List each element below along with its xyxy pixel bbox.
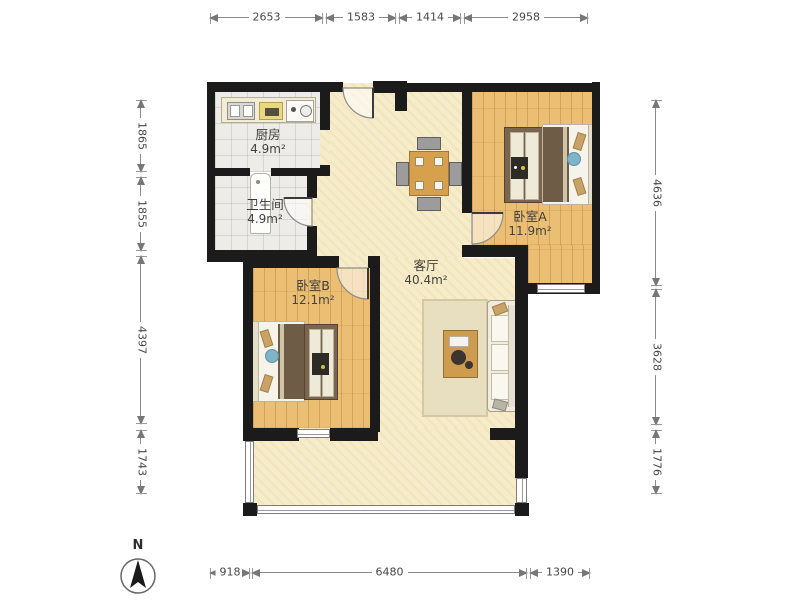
wall bbox=[320, 82, 330, 130]
compass: N bbox=[112, 538, 164, 598]
window bbox=[297, 429, 330, 438]
sofa-cushion bbox=[491, 373, 509, 400]
wall bbox=[243, 256, 253, 441]
dim-value: 918 bbox=[216, 567, 245, 580]
room-label-bathroom: 卫生间 4.9m² bbox=[246, 197, 284, 227]
dim-bottom-1: 6480 bbox=[252, 572, 527, 573]
room-label-living-room: 客厅 40.4m² bbox=[404, 258, 447, 288]
wall bbox=[207, 168, 250, 176]
dim-left-0: 1865 bbox=[140, 100, 141, 172]
dim-value: 4397 bbox=[135, 322, 148, 358]
dim-bottom-0: 918 bbox=[210, 572, 250, 573]
kitchen-sink bbox=[227, 102, 255, 120]
throw-pillow bbox=[492, 302, 509, 316]
throw-pillow bbox=[492, 398, 508, 411]
dim-left-1: 1855 bbox=[140, 177, 141, 251]
sink-basin bbox=[230, 105, 240, 117]
bed-headboard bbox=[253, 322, 259, 401]
tv-led bbox=[514, 166, 517, 169]
tv bbox=[312, 353, 329, 375]
dim-top-3: 2958 bbox=[464, 17, 588, 18]
kitchen-stove bbox=[259, 102, 283, 120]
round-cushion bbox=[567, 152, 581, 166]
dim-right-2: 1776 bbox=[655, 430, 656, 494]
floor-plan-page: { "compass": { "label": "N" }, "rooms": … bbox=[0, 0, 800, 600]
pillow bbox=[573, 132, 587, 151]
plate bbox=[415, 181, 424, 190]
dining-chair bbox=[396, 162, 409, 186]
room-label-kitchen: 厨房 4.9m² bbox=[250, 127, 286, 157]
dim-bottom-2: 1390 bbox=[530, 572, 590, 573]
dim-top-2: 1414 bbox=[399, 17, 461, 18]
wall bbox=[515, 245, 528, 478]
room-name: 卧室A bbox=[508, 209, 551, 224]
plate bbox=[415, 157, 424, 166]
cooktop-ring bbox=[300, 105, 312, 117]
dim-value: 6480 bbox=[372, 567, 408, 580]
bedroom-a-floor-ext bbox=[528, 245, 592, 284]
blanket-stripe bbox=[563, 127, 567, 202]
wardrobe bbox=[304, 324, 338, 400]
dim-right-0: 4636 bbox=[655, 100, 656, 286]
dining-chair bbox=[417, 137, 441, 150]
wall bbox=[462, 92, 472, 213]
dining-table bbox=[409, 151, 449, 196]
room-name: 卧室B bbox=[291, 278, 334, 293]
room-area: 11.9m² bbox=[508, 224, 551, 239]
room-label-bedroom-b: 卧室B 12.1m² bbox=[291, 278, 334, 308]
kitchen-threshold bbox=[320, 130, 330, 165]
dim-value: 1855 bbox=[135, 196, 148, 232]
wall bbox=[243, 428, 299, 441]
plate bbox=[434, 157, 443, 166]
dim-value: 2653 bbox=[249, 12, 285, 25]
wall bbox=[243, 256, 339, 268]
wall-corner-post bbox=[243, 503, 257, 516]
tray bbox=[449, 336, 469, 347]
room-name: 厨房 bbox=[250, 127, 286, 142]
room-name: 客厅 bbox=[404, 258, 447, 273]
tv-led bbox=[321, 365, 325, 369]
tv bbox=[511, 157, 528, 179]
compass-north-label: N bbox=[112, 538, 164, 553]
wall bbox=[330, 428, 378, 441]
wall bbox=[271, 168, 330, 176]
bed bbox=[252, 321, 305, 402]
wall bbox=[395, 93, 407, 111]
coffee-table bbox=[443, 330, 478, 378]
window bbox=[245, 441, 254, 503]
wall bbox=[592, 82, 600, 294]
room-area: 4.9m² bbox=[250, 142, 286, 157]
dim-top-1: 1583 bbox=[326, 17, 396, 18]
dim-value: 1865 bbox=[135, 118, 148, 154]
dim-left-2: 4397 bbox=[140, 256, 141, 424]
sofa-cushion bbox=[491, 315, 509, 342]
window bbox=[537, 284, 585, 293]
plate bbox=[434, 181, 443, 190]
room-area: 12.1m² bbox=[291, 293, 334, 308]
stove-burner bbox=[265, 108, 279, 116]
dining-chair bbox=[417, 197, 441, 211]
tv-led bbox=[521, 166, 525, 170]
dim-value: 1390 bbox=[542, 567, 578, 580]
sink-basin bbox=[243, 105, 253, 117]
dim-left-3: 1743 bbox=[140, 430, 141, 494]
room-area: 4.9m² bbox=[246, 212, 284, 227]
wardrobe bbox=[504, 127, 543, 203]
window bbox=[257, 505, 515, 514]
entrance-threshold bbox=[340, 83, 375, 93]
cooktop-knob bbox=[291, 107, 296, 112]
room-label-bedroom-a: 卧室A 11.9m² bbox=[508, 209, 551, 239]
wall-corner-post bbox=[515, 503, 529, 516]
pillow bbox=[573, 177, 587, 196]
dim-value: 1583 bbox=[343, 12, 379, 25]
dining-chair bbox=[449, 162, 462, 186]
cup bbox=[465, 361, 473, 369]
dim-value: 1776 bbox=[650, 444, 663, 480]
bedroom-b-threshold bbox=[339, 256, 368, 268]
wall bbox=[462, 83, 600, 92]
dim-value: 3628 bbox=[650, 339, 663, 375]
room-area: 40.4m² bbox=[404, 273, 447, 288]
compass-icon bbox=[112, 554, 164, 598]
bed bbox=[542, 124, 595, 205]
wall bbox=[307, 226, 317, 252]
dim-value: 4636 bbox=[650, 175, 663, 211]
wall bbox=[490, 428, 515, 440]
kitchen-counter bbox=[221, 97, 316, 123]
bathroom-threshold bbox=[307, 198, 317, 226]
wall bbox=[373, 81, 407, 93]
wall bbox=[307, 176, 317, 198]
floor-plan: 厨房 4.9m² 卫生间 4.9m² 卧室A 11.9m² 卧室B 12.1m²… bbox=[0, 0, 800, 600]
dim-value: 2958 bbox=[508, 12, 544, 25]
dim-value: 1743 bbox=[135, 444, 148, 480]
fixture-knob bbox=[256, 180, 260, 184]
pillow bbox=[260, 329, 274, 348]
room-name: 卫生间 bbox=[246, 197, 284, 212]
wall bbox=[407, 83, 462, 92]
window bbox=[516, 478, 527, 503]
kettle bbox=[451, 350, 466, 365]
round-cushion bbox=[265, 349, 279, 363]
pillow bbox=[260, 374, 274, 393]
dim-right-1: 3628 bbox=[655, 289, 656, 425]
sofa-cushion bbox=[491, 344, 509, 371]
kitchen-cooktop bbox=[286, 100, 314, 122]
dim-value: 1414 bbox=[412, 12, 448, 25]
blanket-stripe bbox=[280, 324, 284, 399]
dim-top-0: 2653 bbox=[210, 17, 323, 18]
bedroom-a-threshold bbox=[462, 213, 472, 245]
wall bbox=[370, 256, 380, 432]
